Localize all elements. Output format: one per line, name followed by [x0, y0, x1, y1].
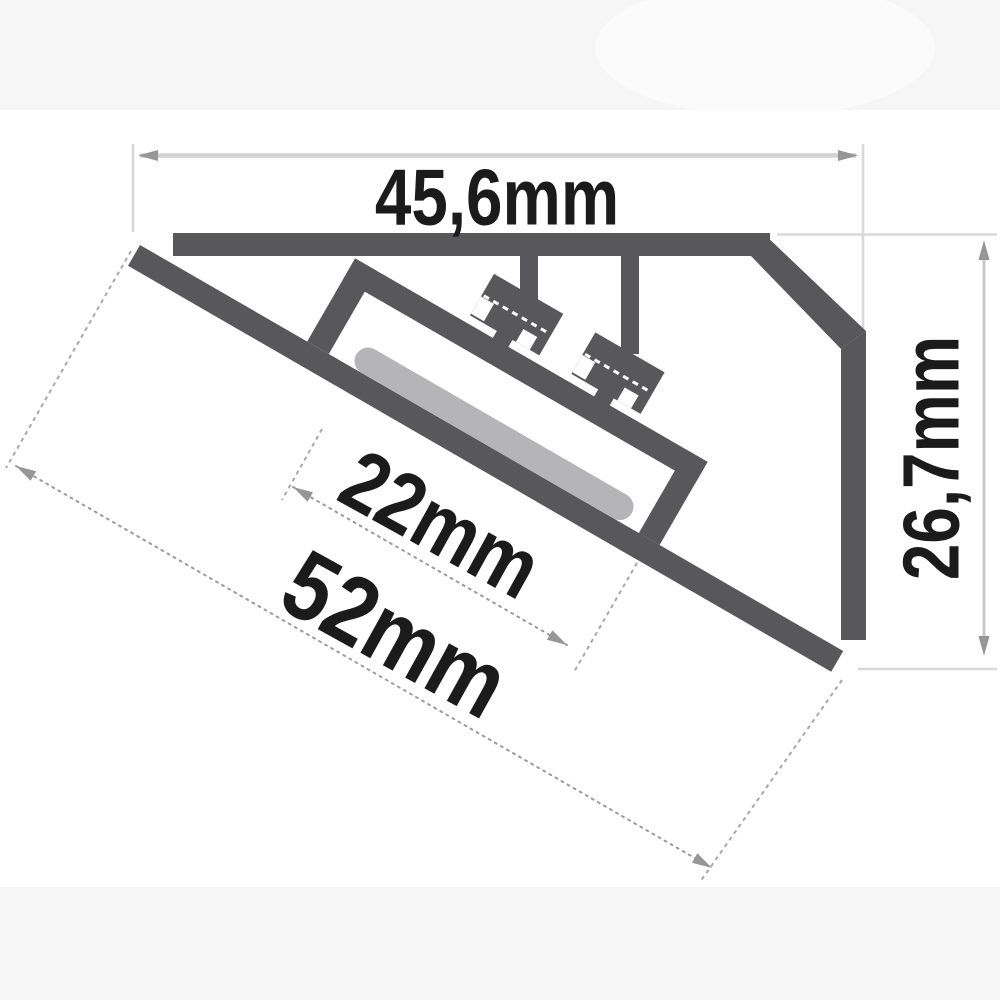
profile-drawing: 45,6mm 26,7mm 22mm 52mm	[0, 0, 1000, 1000]
arrowhead-22-left	[293, 487, 313, 502]
arrowhead-22-right	[547, 630, 567, 645]
arrowhead-267-bottom	[979, 636, 990, 656]
arrowhead-45-left	[138, 150, 158, 161]
arrowhead-52-right	[692, 853, 712, 868]
ext-dash-22-right	[574, 556, 641, 672]
ext-dash-52-right	[700, 680, 842, 882]
label-top-width: 45,6mm	[375, 152, 619, 242]
ext-dash-52-left	[6, 251, 131, 468]
mounting-flange-right	[841, 331, 866, 640]
arrowhead-45-right	[838, 150, 858, 161]
corner-bevel	[751, 233, 866, 349]
drawing-stage: 45,6mm 26,7mm 22mm 52mm	[0, 0, 1000, 1000]
bottom-letterbox-band	[0, 887, 1000, 1000]
screw-boss-stem-2	[621, 254, 639, 354]
arrowhead-52-left	[16, 466, 36, 481]
dimension-right-height	[979, 240, 990, 656]
arrowhead-267-top	[979, 240, 990, 260]
label-right-height: 26,7mm	[886, 336, 976, 580]
